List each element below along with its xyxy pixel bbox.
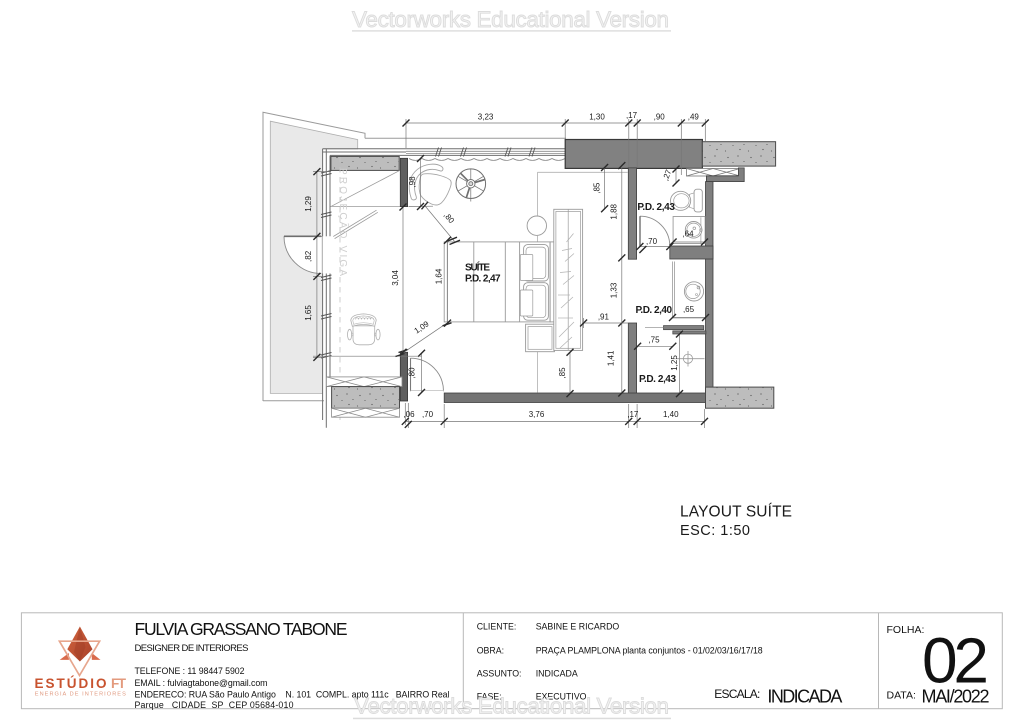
svg-text:INDICADA: INDICADA [536, 669, 578, 679]
svg-text:SABINE E RICARDO: SABINE E RICARDO [536, 622, 620, 632]
svg-text:CLIENTE:: CLIENTE: [477, 622, 517, 632]
svg-text:,70: ,70 [646, 237, 658, 246]
svg-text:1,41: 1,41 [607, 350, 616, 366]
svg-text:,90: ,90 [654, 113, 666, 122]
svg-text:,80: ,80 [408, 367, 417, 379]
svg-text:3,23: 3,23 [478, 113, 494, 122]
svg-text:,65: ,65 [683, 305, 695, 314]
svg-text:,85: ,85 [558, 367, 567, 379]
svg-text:1,65: 1,65 [304, 305, 313, 321]
svg-text:INDICADA: INDICADA [767, 687, 842, 707]
svg-text:LAYOUT SUÍTE: LAYOUT SUÍTE [680, 504, 792, 521]
svg-text:P.D. 2,40: P.D. 2,40 [636, 305, 673, 316]
svg-text:1,88: 1,88 [610, 203, 619, 219]
svg-text:TELEFONE : 11 98447 5902: TELEFONE : 11 98447 5902 [135, 666, 245, 676]
svg-text:,64: ,64 [682, 229, 694, 238]
svg-text:P.D. 2,43: P.D. 2,43 [639, 374, 676, 385]
svg-text:MAI/2022: MAI/2022 [922, 687, 990, 707]
svg-text:,98: ,98 [408, 176, 417, 188]
svg-text:ESC: 1:50: ESC: 1:50 [680, 523, 750, 539]
svg-text:,17: ,17 [626, 111, 638, 120]
svg-text:PROJEÇÃO VIGA: PROJEÇÃO VIGA [337, 168, 350, 278]
svg-text:1,25: 1,25 [670, 355, 679, 371]
svg-text:SUÍTE: SUÍTE [465, 261, 490, 274]
svg-text:,91: ,91 [598, 313, 610, 322]
svg-text:1,40: 1,40 [663, 410, 679, 419]
svg-text:3,76: 3,76 [529, 410, 545, 419]
svg-text:,85: ,85 [593, 182, 602, 194]
svg-text:DATA:: DATA: [887, 690, 916, 702]
svg-text:Vectorworks Educational Versio: Vectorworks Educational Version [354, 694, 669, 719]
svg-text:1,30: 1,30 [589, 113, 605, 122]
svg-text:1,33: 1,33 [610, 282, 619, 298]
svg-text:ESTÚDIO: ESTÚDIO [35, 676, 107, 691]
svg-text:OBRA:: OBRA: [477, 645, 504, 655]
svg-text:,27: ,27 [661, 168, 673, 182]
svg-text:FOLHA:: FOLHA: [887, 624, 925, 636]
svg-text:EMAIL : fulviagtabone@gmail.co: EMAIL : fulviagtabone@gmail.com [135, 678, 268, 688]
svg-text:1,29: 1,29 [304, 196, 313, 212]
svg-text:Parque CIDADE SP CEP 05684: Parque CIDADE SP CEP 05684-010 [135, 700, 294, 710]
svg-text:,70: ,70 [422, 410, 434, 419]
svg-text:P.D. 2,43: P.D. 2,43 [637, 202, 675, 213]
svg-text:,80: ,80 [442, 211, 456, 226]
svg-text:Vectorworks Educational Versio: Vectorworks Educational Version [352, 7, 669, 32]
svg-text:3,04: 3,04 [391, 270, 400, 286]
svg-text:FT: FT [111, 676, 127, 691]
svg-text:,49: ,49 [688, 113, 700, 122]
svg-text:,17: ,17 [627, 410, 639, 419]
svg-text:ASSUNTO:: ASSUNTO: [477, 669, 522, 679]
svg-text:ESCALA:: ESCALA: [714, 687, 760, 701]
svg-text:,82: ,82 [304, 250, 313, 262]
svg-text:PRAÇA PLAMPLONA planta conjunt: PRAÇA PLAMPLONA planta conjuntos - 01/02… [536, 645, 763, 655]
svg-text:P.D. 2,47: P.D. 2,47 [465, 274, 501, 285]
svg-text:,06: ,06 [403, 410, 415, 419]
svg-text:1,09: 1,09 [413, 319, 431, 335]
svg-text:DESIGNER DE INTERIORES: DESIGNER DE INTERIORES [135, 643, 249, 654]
svg-text:1,64: 1,64 [435, 268, 444, 284]
svg-text:,75: ,75 [648, 336, 660, 345]
svg-text:FULVIA GRASSANO TABONE: FULVIA GRASSANO TABONE [135, 619, 348, 639]
svg-text:ENERGIA DE INTERIORES: ENERGIA DE INTERIORES [35, 691, 126, 697]
